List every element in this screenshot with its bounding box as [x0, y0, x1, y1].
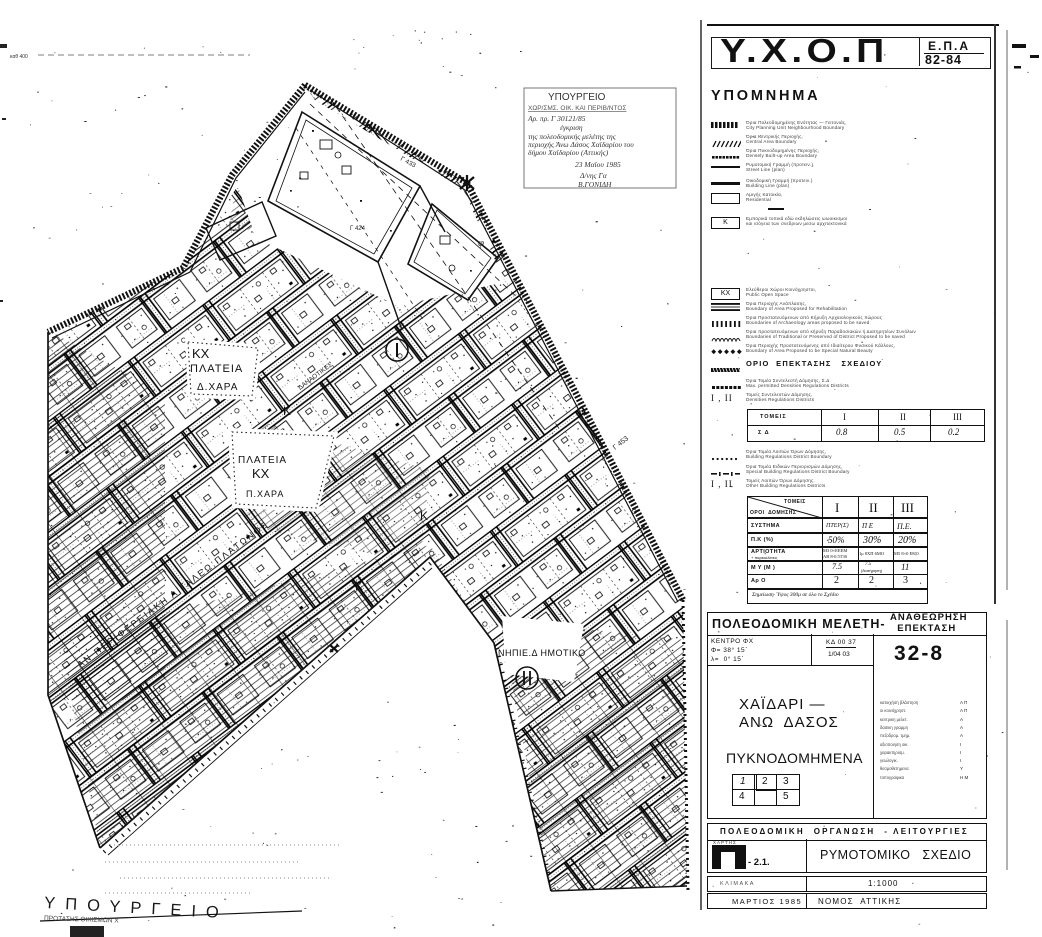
svg-text:ΚΧ: ΚΧ [192, 346, 210, 361]
svg-text:Δ/νης Γα: Δ/νης Γα [579, 171, 608, 180]
svg-text:Αρ. πρ. Γ 30121/85: Αρ. πρ. Γ 30121/85 [527, 114, 586, 123]
svg-text:ΠΛΑΤΕΙΑ: ΠΛΑΤΕΙΑ [190, 363, 243, 375]
svg-text:ΠΛΑΤΕΙΑ: ΠΛΑΤΕΙΑ [238, 455, 287, 466]
svg-text:ΠΡΟΤΑΣΗΣ ΟΙΚΙΣΜΩΝ Χ: ΠΡΟΤΑΣΗΣ ΟΙΚΙΣΜΩΝ Χ [44, 915, 119, 925]
svg-text:καθ 400: καθ 400 [10, 54, 28, 60]
svg-text:Κ: Κ [283, 404, 291, 418]
svg-text:23 Μαΐου 1985: 23 Μαΐου 1985 [575, 160, 621, 169]
svg-text:Κ: Κ [355, 579, 363, 593]
svg-text:Δ.ΧΑΡΑ: Δ.ΧΑΡΑ [197, 382, 238, 393]
svg-text:ΚΧ: ΚΧ [252, 466, 270, 481]
svg-text:Π.ΧΑΡΑ: Π.ΧΑΡΑ [246, 489, 284, 499]
svg-text:Β.ΓΟΝΙΔΗ: Β.ΓΟΝΙΔΗ [578, 180, 612, 189]
svg-text:Γ 453: Γ 453 [612, 435, 630, 451]
svg-text:ΝΗΠΙΕ.Δ ΗΜΟΤΙΚΟ: ΝΗΠΙΕ.Δ ΗΜΟΤΙΚΟ [498, 648, 586, 658]
svg-text:Γ 424: Γ 424 [350, 226, 366, 232]
svg-text:ΧΩΡ/ΣΜΣ. ΟΙΚ. ΚΑΙ ΠΕΡΙΒ/ΝΤΟΣ: ΧΩΡ/ΣΜΣ. ΟΙΚ. ΚΑΙ ΠΕΡΙΒ/ΝΤΟΣ [528, 105, 626, 112]
svg-text:δήμου Χαϊδαρίου (Αττικής): δήμου Χαϊδαρίου (Αττικής) [528, 148, 609, 157]
svg-text:Κ: Κ [420, 509, 428, 523]
svg-text:ΥΠΟΥΡΓΕΙΟ: ΥΠΟΥΡΓΕΙΟ [548, 92, 606, 103]
svg-text:φ: φ [478, 237, 484, 249]
svg-text:έγκριση: έγκριση [560, 123, 583, 132]
